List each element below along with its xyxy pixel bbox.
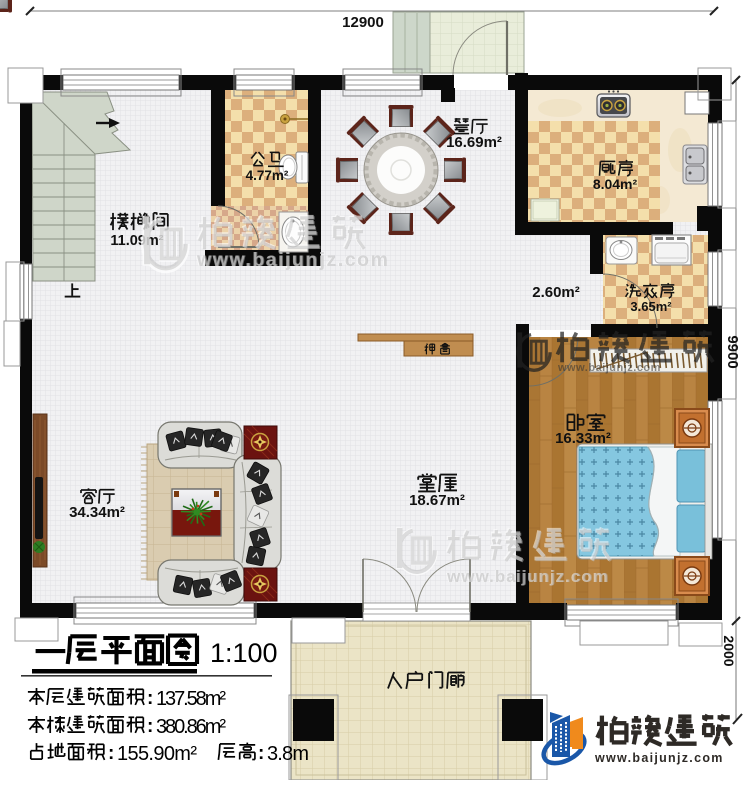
svg-text:12900: 12900 <box>342 14 384 31</box>
svg-text:137.58m²: 137.58m² <box>156 688 226 710</box>
svg-text::: : <box>147 688 153 709</box>
svg-text:155.90m²: 155.90m² <box>117 743 197 765</box>
svg-text:3.8m: 3.8m <box>267 743 309 765</box>
svg-text::: : <box>258 743 264 764</box>
svg-text:9900: 9900 <box>724 335 741 368</box>
svg-text:4.77m²: 4.77m² <box>246 168 289 183</box>
svg-text:www.baijunjz.com: www.baijunjz.com <box>446 567 610 586</box>
svg-text:380.86m²: 380.86m² <box>156 716 226 738</box>
svg-text:18.67m²: 18.67m² <box>409 492 465 509</box>
svg-text:www.baijunjz.com: www.baijunjz.com <box>557 362 661 374</box>
svg-text::: : <box>147 716 153 737</box>
svg-text:16.33m²: 16.33m² <box>555 430 611 447</box>
svg-text:www.baijunjz.com: www.baijunjz.com <box>196 249 389 271</box>
svg-text:2.60m²: 2.60m² <box>532 284 580 301</box>
svg-text:8.04m²: 8.04m² <box>593 176 638 192</box>
svg-text::: : <box>108 743 114 764</box>
svg-text:3.65m²: 3.65m² <box>630 299 672 314</box>
svg-text:1:100: 1:100 <box>210 638 278 668</box>
svg-text:34.34m²: 34.34m² <box>69 504 125 521</box>
svg-text:2000: 2000 <box>721 635 737 666</box>
svg-text:www.baijunjz.com: www.baijunjz.com <box>594 751 724 765</box>
svg-text:16.69m²: 16.69m² <box>446 134 502 151</box>
svg-text:11.09m²: 11.09m² <box>110 233 163 249</box>
